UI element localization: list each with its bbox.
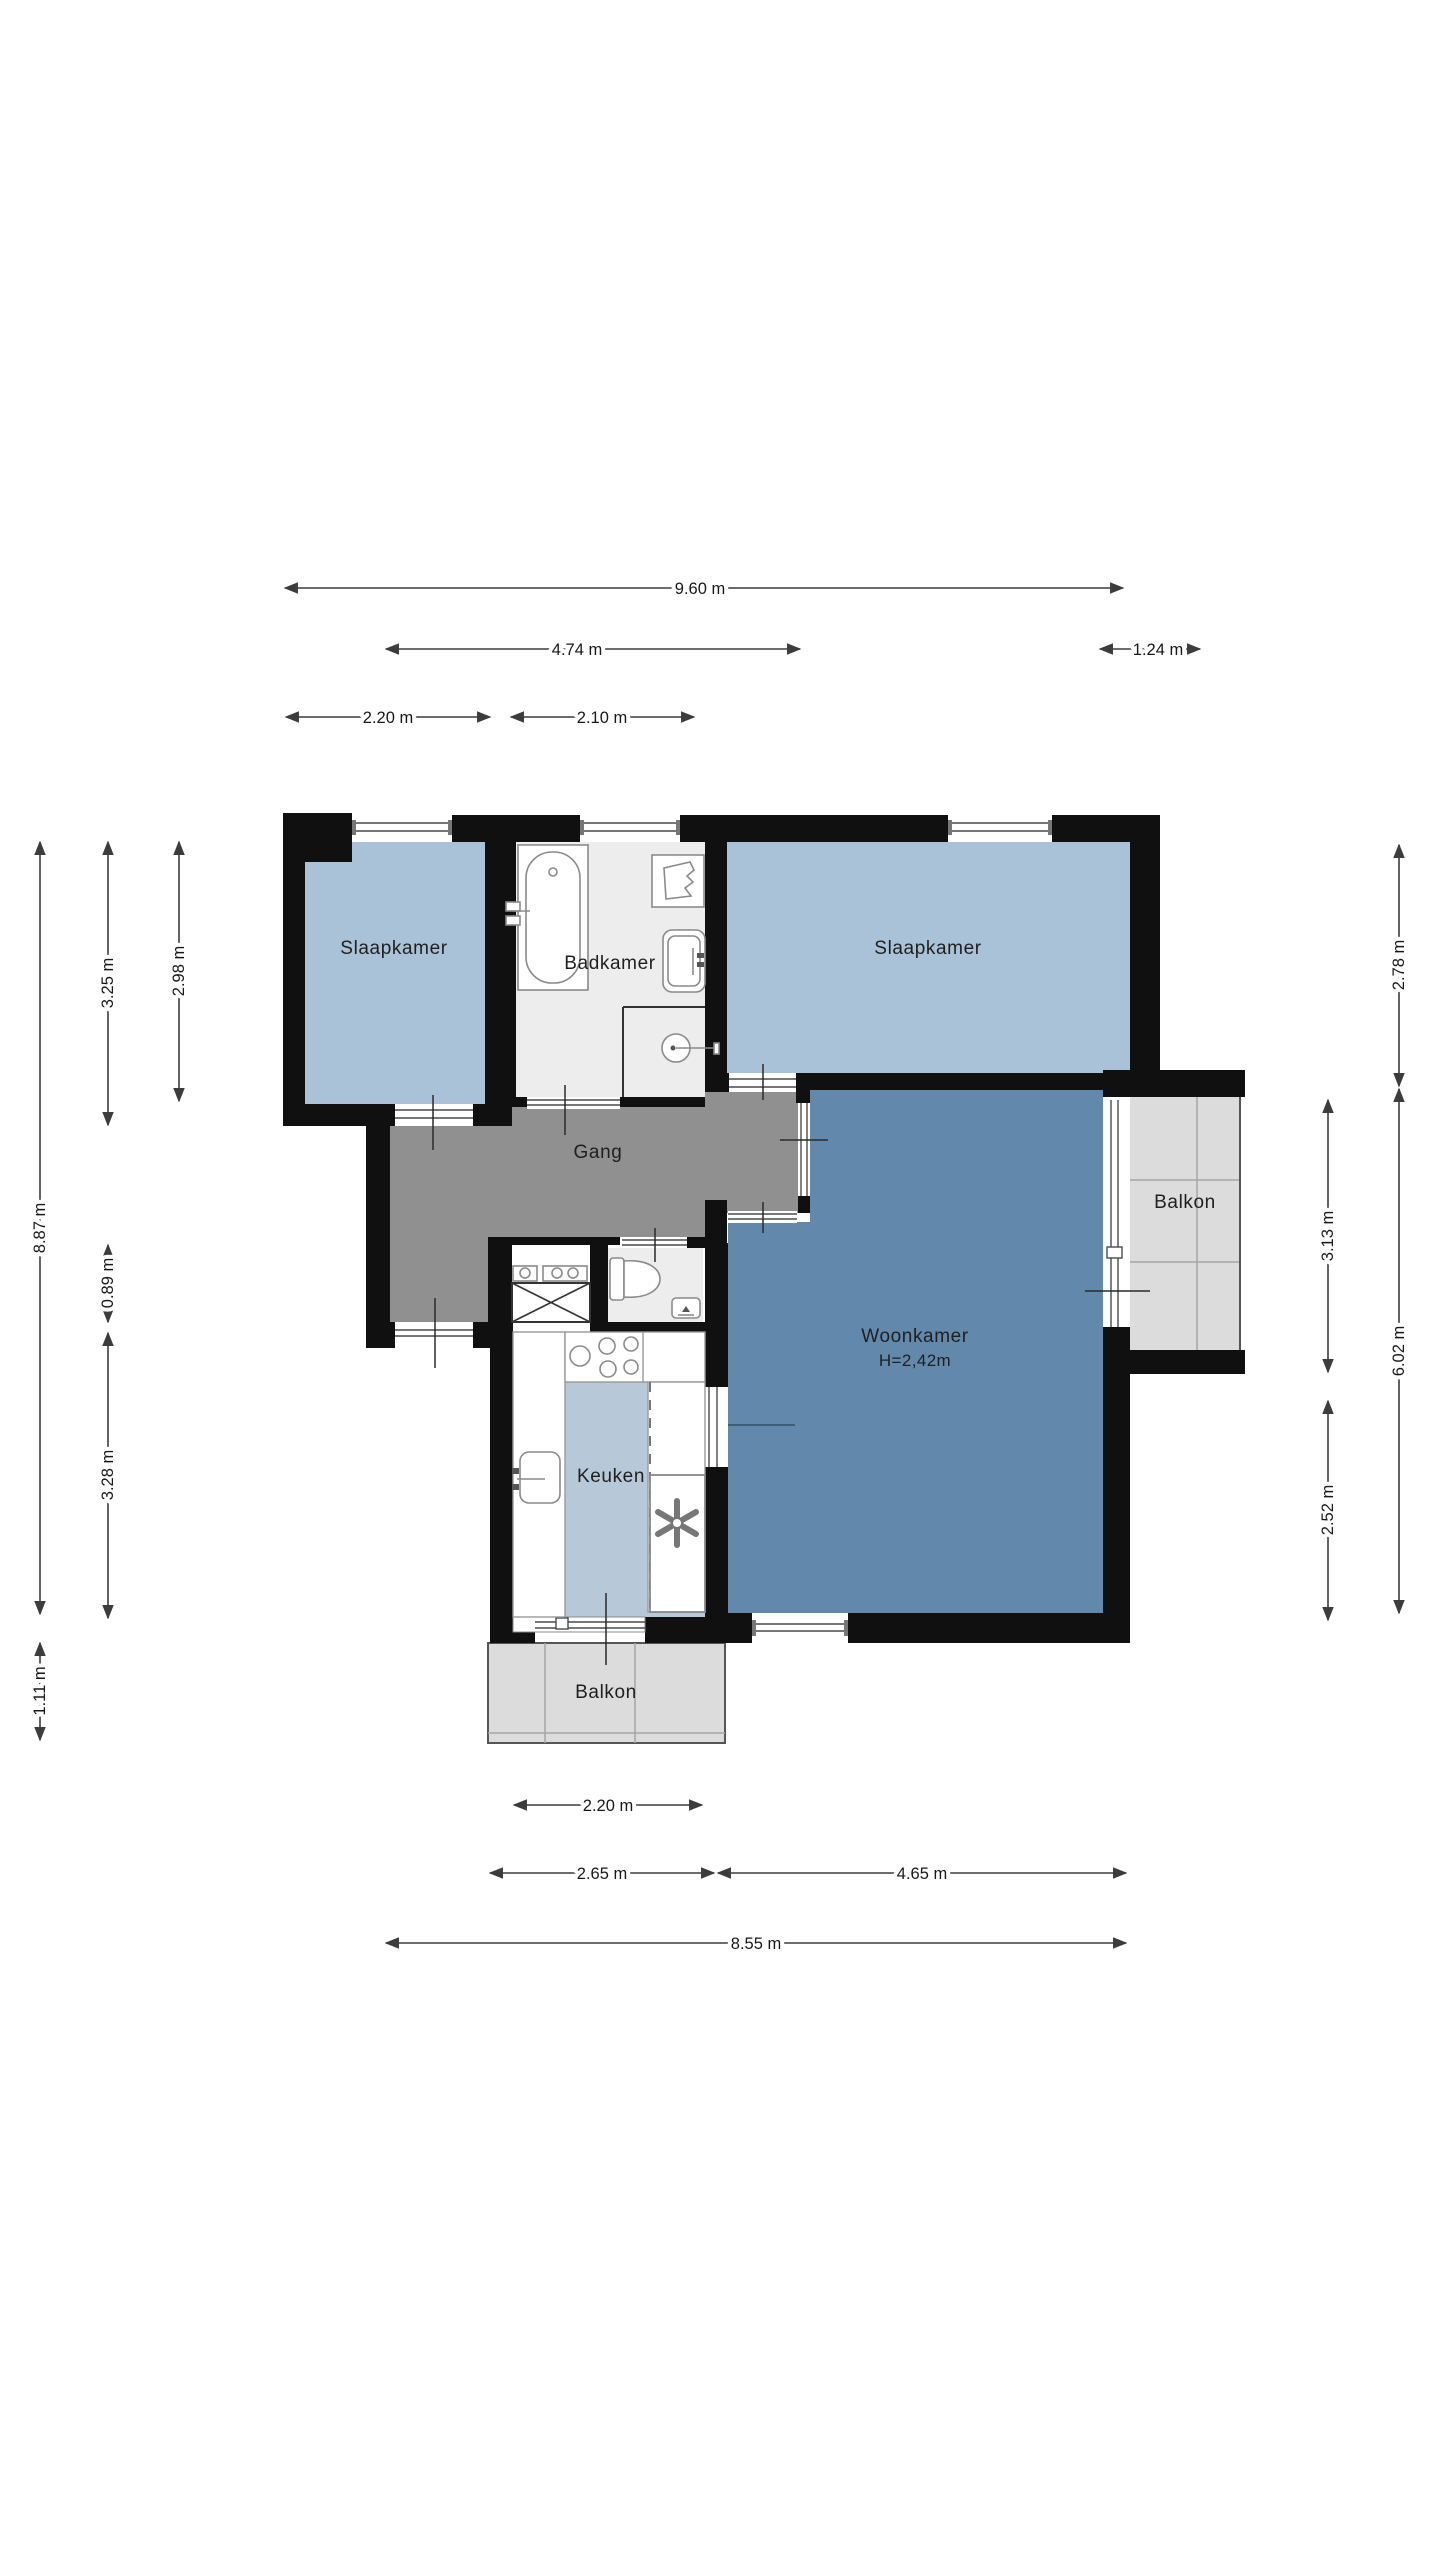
svg-text:2.20 m: 2.20 m <box>583 1797 633 1815</box>
room-fills <box>305 842 1240 1743</box>
dim-top-bathroom: 2.10 m <box>511 709 694 727</box>
svg-text:6.02 m: 6.02 m <box>1390 1326 1408 1376</box>
dim-bottom-kitchen-section: 2.65 m <box>490 1865 714 1883</box>
bedroom-left-label: Slaapkamer <box>340 938 447 959</box>
svg-text:2.10 m: 2.10 m <box>577 709 627 727</box>
utility-meters-icon <box>513 1266 587 1281</box>
svg-text:8.55 m: 8.55 m <box>731 1935 781 1953</box>
hallway-floor <box>512 1107 705 1237</box>
dim-top-left-section: 4.74 m <box>386 641 800 659</box>
svg-text:3.28 m: 3.28 m <box>99 1450 117 1500</box>
dim-left-bedroom: 3.25 m <box>99 842 117 1125</box>
living-room-label: Woonkamer <box>861 1326 969 1347</box>
ventilation-fan-icon <box>650 1475 705 1612</box>
floor-plan-page: Slaapkamer Badkamer Slaapkamer Gang Woon… <box>0 0 1440 2560</box>
svg-text:9.60 m: 9.60 m <box>675 580 725 598</box>
dim-bottom-living-section: 4.65 m <box>718 1865 1126 1883</box>
washbasin-icon <box>663 930 705 992</box>
meter-cabinet-icon <box>512 1266 590 1322</box>
dim-right-living-lower: 2.52 m <box>1319 1401 1337 1620</box>
hallway-label: Gang <box>574 1142 623 1163</box>
svg-text:4.74 m: 4.74 m <box>552 641 602 659</box>
living-room-floor <box>728 1222 1103 1613</box>
svg-text:1.24 m: 1.24 m <box>1133 641 1183 659</box>
dim-bottom-kitchen: 2.20 m <box>514 1797 702 1815</box>
hallway-floor <box>727 1092 798 1213</box>
hallway-floor <box>705 1092 727 1200</box>
window-bedroom-right <box>948 820 1052 835</box>
dim-left-kitchen: 3.28 m <box>99 1333 117 1618</box>
svg-text:2.98 m: 2.98 m <box>170 946 188 996</box>
kitchen-counter <box>565 1332 705 1382</box>
dim-left-bathroom: 2.98 m <box>170 842 188 1101</box>
shower-icon <box>652 855 704 907</box>
svg-text:2.20 m: 2.20 m <box>363 709 413 727</box>
floor-plan-drawing: Slaapkamer Badkamer Slaapkamer Gang Woon… <box>0 0 1440 2560</box>
svg-text:3.25 m: 3.25 m <box>99 958 117 1008</box>
balcony-right-label: Balkon <box>1154 1192 1216 1213</box>
svg-text:2.78 m: 2.78 m <box>1390 940 1408 990</box>
dim-top-balcony: 1.24 m <box>1100 641 1200 659</box>
svg-text:2.65 m: 2.65 m <box>577 1865 627 1883</box>
balcony-right-floor <box>1130 1097 1240 1350</box>
bathroom-label: Badkamer <box>564 953 655 974</box>
svg-text:8.87 m: 8.87 m <box>31 1203 49 1253</box>
dim-left-balcony: 1.11 m <box>31 1643 49 1740</box>
dim-top-bedroom: 2.20 m <box>286 709 490 727</box>
window-bathroom <box>580 820 680 835</box>
corner-sink-icon <box>672 1298 700 1318</box>
svg-text:2.52 m: 2.52 m <box>1319 1485 1337 1535</box>
window-bedroom-left <box>352 820 452 835</box>
kitchen-label: Keuken <box>577 1466 645 1487</box>
dim-right-living-total: 6.02 m <box>1390 1089 1408 1613</box>
living-room-height-label: H=2,42m <box>879 1351 951 1370</box>
window-living-room <box>752 1620 848 1636</box>
svg-text:4.65 m: 4.65 m <box>897 1865 947 1883</box>
bedroom-left-floor <box>305 842 485 1104</box>
svg-text:0.89 m: 0.89 m <box>99 1258 117 1308</box>
bedroom-right-label: Slaapkamer <box>874 938 981 959</box>
svg-text:1.11 m: 1.11 m <box>31 1666 49 1715</box>
dim-left-total: 8.87 m <box>31 842 49 1614</box>
dim-right-bedroom: 2.78 m <box>1390 845 1408 1086</box>
dim-left-hall: 0.89 m <box>99 1245 117 1322</box>
svg-text:3.13 m: 3.13 m <box>1319 1211 1337 1261</box>
dim-top-total: 9.60 m <box>285 580 1123 598</box>
balcony-bottom-label: Balkon <box>575 1682 637 1703</box>
dim-right-balcony: 3.13 m <box>1319 1100 1337 1372</box>
dim-bottom-total: 8.55 m <box>386 1935 1126 1953</box>
